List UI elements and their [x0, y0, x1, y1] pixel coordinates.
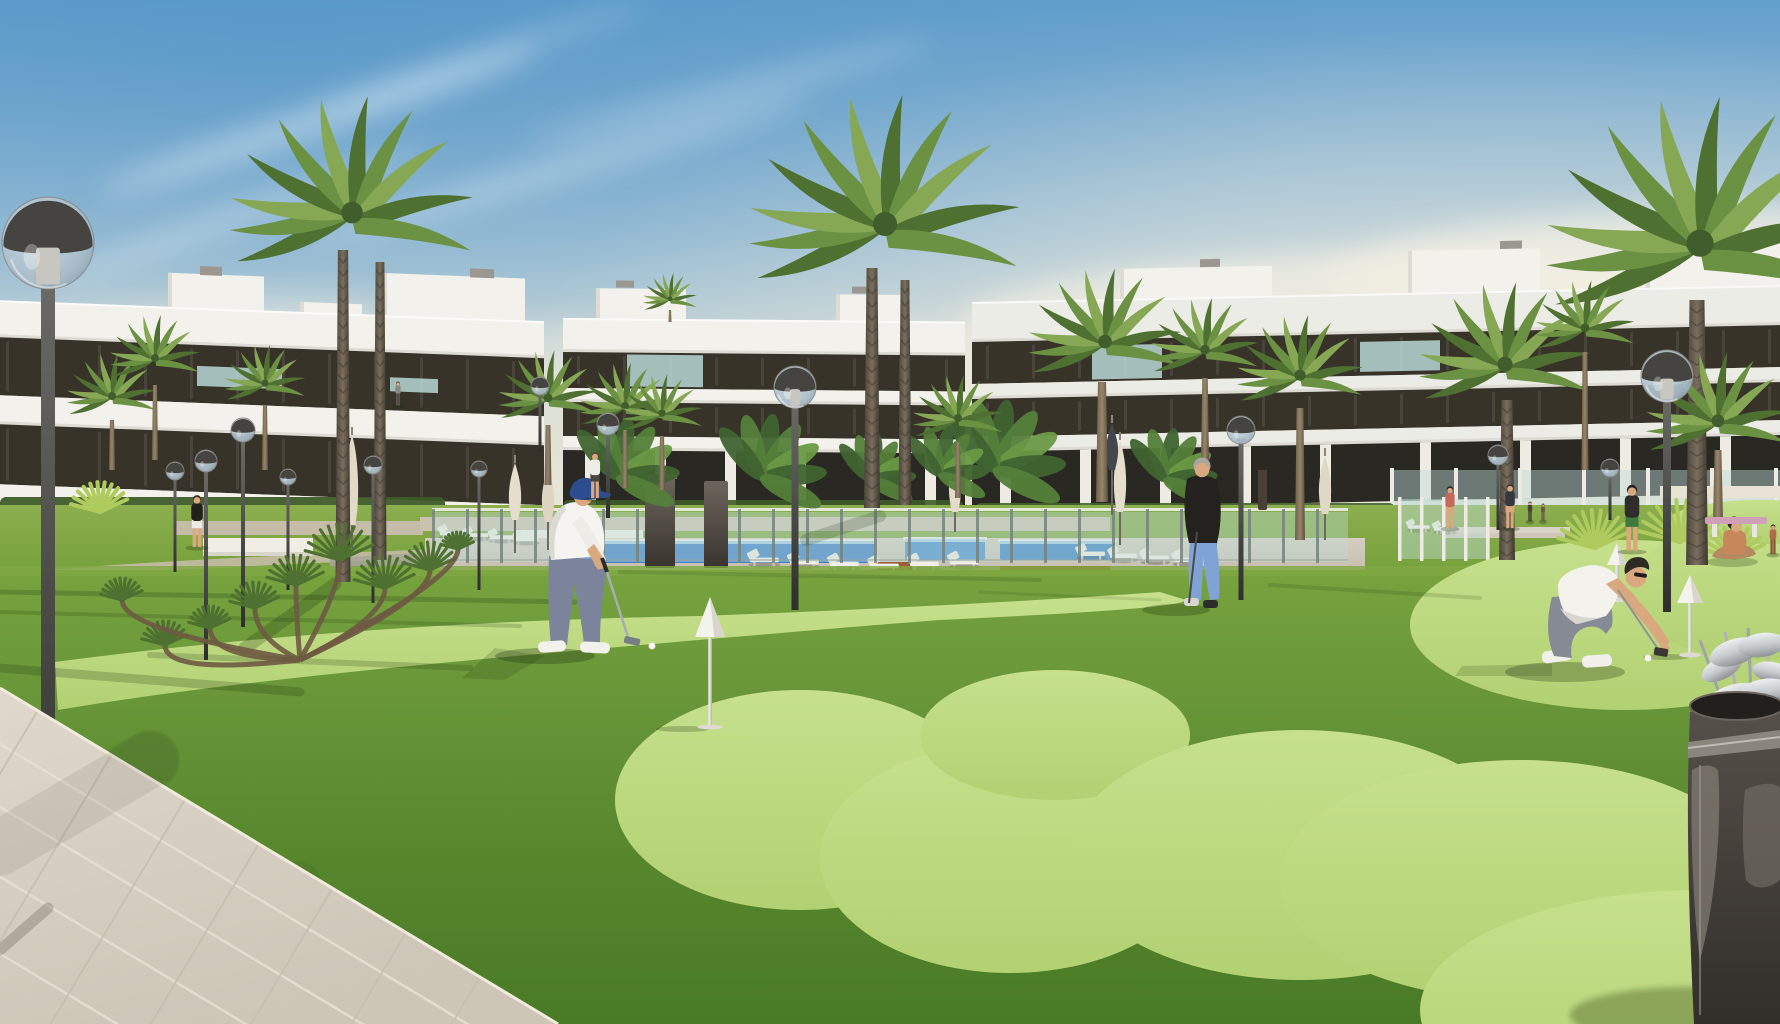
figure-head	[1507, 486, 1513, 492]
figure-head	[194, 497, 201, 504]
penthouse-volume	[383, 273, 525, 322]
lamp-globe-cap-curve	[364, 464, 381, 467]
window-mullion	[715, 357, 718, 385]
window-mullion	[807, 408, 810, 434]
golf-ball	[1645, 655, 1652, 662]
window-mullion	[328, 441, 331, 493]
fence-post	[500, 509, 503, 563]
figure-head	[1771, 526, 1775, 530]
lamp-globe-cap-curve	[166, 470, 183, 473]
figure-head	[592, 454, 598, 460]
figure-leg	[1506, 511, 1509, 529]
fence-post	[772, 509, 775, 563]
figure-torso	[1770, 529, 1777, 539]
window-mullion	[853, 359, 856, 387]
window-mullion	[577, 356, 580, 384]
lamp-glint	[200, 461, 204, 467]
fence-post	[1078, 509, 1081, 563]
window-mullion	[1538, 391, 1541, 421]
window-mullion	[98, 432, 101, 484]
window-mullion	[1308, 396, 1311, 426]
figure-leg	[1543, 512, 1544, 521]
figure-leg	[198, 526, 202, 547]
lamp-globe-cap-curve	[597, 423, 618, 427]
rooftop-ac-unit	[616, 280, 634, 287]
window-mullion	[1492, 392, 1495, 422]
palm-crown-core	[954, 414, 962, 422]
figure-head	[1529, 502, 1532, 505]
figure-torso	[1528, 505, 1532, 512]
palm-crown-core	[1294, 370, 1305, 381]
lamp-pole	[1609, 474, 1612, 520]
palm-trunk	[955, 442, 961, 498]
lamp-glint	[1234, 430, 1239, 438]
terrace-post	[1582, 468, 1586, 510]
penthouse-shade	[596, 288, 600, 318]
lamp-globe-cap-curve	[1227, 428, 1254, 433]
rooftop-ac-unit	[852, 287, 868, 294]
resort-render	[0, 0, 1780, 1024]
window-mullion	[6, 429, 9, 481]
figure-shadow	[585, 497, 605, 502]
window-mullion	[1262, 397, 1265, 427]
fence-post	[1146, 509, 1149, 563]
rooftop-ac-unit	[1200, 259, 1220, 267]
figure-leg	[1530, 511, 1532, 521]
fence-post	[534, 509, 537, 563]
golf-bag-rim	[1690, 692, 1780, 720]
window-mullion	[1630, 332, 1633, 366]
palm-trunk	[152, 385, 158, 460]
figure-torso	[191, 503, 202, 521]
lamp-pole	[606, 431, 610, 518]
window-mullion	[1446, 393, 1449, 423]
figure-leg	[1626, 524, 1631, 550]
fence-post-white	[1398, 497, 1402, 561]
figure-torso	[590, 459, 600, 475]
figure-leg	[1633, 524, 1638, 550]
figure-shadow	[1539, 520, 1547, 525]
lamp-glint	[368, 465, 371, 470]
penthouse-shade	[168, 273, 172, 309]
figure-leg	[1770, 539, 1772, 555]
crouched-man-shoe	[1582, 654, 1613, 668]
window-mullion	[1078, 401, 1081, 431]
figure-leg	[193, 526, 197, 547]
figure-leg	[396, 393, 398, 405]
golf-bag-panel	[1743, 784, 1780, 888]
figure-torso	[1625, 495, 1640, 517]
lamp-globe-cap-curve	[280, 476, 296, 479]
figure-leg	[1511, 511, 1514, 529]
figure-head	[1542, 504, 1544, 506]
lamp-glint	[1493, 455, 1497, 461]
fence-post	[840, 509, 843, 563]
palm-trunk	[1499, 400, 1515, 560]
lamp-pole	[1497, 462, 1500, 531]
palm-crown-core	[544, 393, 553, 402]
palm-crown-core	[1497, 357, 1512, 372]
palm-trunk	[1295, 408, 1305, 540]
palm-crown-core	[261, 380, 268, 387]
window-mullion	[1630, 389, 1633, 419]
figure-head	[1447, 488, 1452, 493]
figure-head	[396, 382, 399, 385]
palm-trunk	[545, 425, 552, 485]
penthouse-volume	[168, 273, 264, 313]
penthouse-volume	[1408, 248, 1540, 295]
figure-shadow	[1500, 527, 1519, 532]
fence-post-white	[1420, 497, 1424, 561]
lamp-glint	[170, 471, 173, 476]
golf-ball	[649, 643, 656, 650]
figure-shadow	[1441, 527, 1459, 532]
figure-leg	[1451, 511, 1454, 528]
fence-post	[1112, 509, 1115, 563]
window-mullion	[466, 359, 469, 409]
lamp-globe-cap-curve	[231, 428, 254, 432]
lamp-glint	[535, 386, 538, 391]
fence-post-white	[1486, 497, 1490, 561]
lamp-globe-cap-curve	[195, 460, 216, 464]
lamp-glint	[602, 424, 606, 430]
golfer-shoe	[538, 640, 567, 653]
ground-column	[1080, 450, 1091, 508]
palm-crown-core	[658, 410, 665, 417]
figure-torso	[395, 385, 400, 393]
figure-shadow	[186, 546, 209, 551]
standing-man-shoe	[1184, 598, 1199, 606]
window-mullion	[144, 434, 147, 486]
palm-crown-core	[1098, 335, 1112, 349]
figure-torso	[1505, 491, 1515, 506]
figure-leg	[1773, 539, 1775, 555]
render-canvas	[0, 0, 1780, 1024]
pin-base	[697, 725, 722, 730]
fence-post	[1316, 509, 1319, 563]
window-mullion	[715, 407, 718, 433]
window-mullion	[236, 437, 239, 489]
fence-post-white	[1464, 497, 1468, 561]
lamp-pole	[1663, 393, 1671, 612]
lamp-globe-cap-curve	[471, 468, 487, 471]
palm-trunk	[374, 262, 387, 560]
palm-trunk	[1582, 352, 1589, 470]
lamp-glint	[1653, 377, 1662, 392]
penthouse-shade	[836, 294, 840, 320]
palm-trunk	[1201, 378, 1209, 460]
window-mullion	[6, 342, 9, 392]
lamp-glint	[475, 469, 478, 473]
terrace-post	[1518, 468, 1522, 510]
figure-head	[1628, 487, 1637, 496]
palm-trunk	[262, 405, 268, 470]
figure-leg	[1446, 511, 1449, 528]
lamp-glint	[284, 477, 287, 481]
window-mullion	[190, 436, 193, 488]
bollard-cap	[1256, 465, 1269, 470]
palm-crown-core	[108, 392, 116, 400]
window-mullion	[853, 409, 856, 435]
lamp-globe-cap-curve	[1601, 467, 1618, 470]
figure-leg	[1541, 512, 1542, 521]
standing-man-shadow	[1142, 604, 1210, 616]
figure-leg	[596, 480, 599, 498]
palm-crown-core	[151, 354, 159, 362]
lamp-pole	[478, 474, 481, 590]
palm-trunk	[1096, 382, 1108, 502]
lamp-pole	[539, 392, 542, 452]
standing-man-head	[1195, 463, 1209, 477]
figure-torso	[1445, 493, 1454, 507]
penthouse-shade	[1120, 269, 1124, 301]
lamp-pole	[174, 477, 177, 572]
window-mullion	[1354, 395, 1357, 425]
fence-post	[1044, 509, 1047, 563]
fence-post	[738, 509, 741, 563]
lamp-globe-cap-curve	[1488, 454, 1507, 458]
figure-shadow	[1766, 553, 1779, 558]
window-mullion	[282, 352, 285, 402]
window-mullion	[1124, 400, 1127, 430]
palm-crown-core	[1200, 345, 1210, 355]
lamp-glint	[24, 244, 41, 270]
rooftop-ac-unit	[1500, 240, 1522, 248]
figure-leg	[1528, 511, 1530, 521]
window-mullion	[1170, 399, 1173, 429]
figure-shadow	[393, 404, 404, 409]
window-mullion	[328, 354, 331, 404]
pink-bench-leg	[1752, 524, 1757, 537]
rooftop-ac-unit	[470, 268, 494, 278]
fence-post	[636, 509, 639, 563]
figure-leg	[591, 480, 594, 498]
fence-post	[1282, 509, 1285, 563]
palm-trunk	[109, 420, 115, 470]
standing-man-shoe	[1203, 600, 1218, 608]
palm-crown-core	[341, 202, 363, 224]
pin-base	[1679, 653, 1701, 658]
fence-post	[976, 509, 979, 563]
fence-post	[908, 509, 911, 563]
penthouse-shade	[1408, 251, 1412, 295]
palm-crown-core	[1581, 323, 1590, 332]
standing-man-sweater	[1185, 475, 1221, 543]
window-mullion	[1216, 398, 1219, 428]
lamp-glint	[237, 430, 241, 437]
window-mullion	[1032, 345, 1035, 379]
golfer-shoe	[580, 641, 611, 654]
window-mullion	[190, 349, 193, 399]
sitting-woman-top	[1723, 529, 1746, 554]
palm-trunk	[659, 436, 665, 490]
window-mullion	[577, 406, 580, 432]
lamp-glint	[784, 387, 792, 399]
window-mullion	[986, 346, 989, 380]
pink-bench	[1705, 517, 1767, 524]
fence-post	[1010, 509, 1013, 563]
palm-trunk	[1713, 450, 1723, 520]
penthouse-volume	[1120, 266, 1272, 301]
pink-bench-leg	[1712, 524, 1717, 537]
palm-crown-core	[1712, 414, 1725, 427]
figure-torso	[1541, 507, 1545, 513]
palm-trunk	[669, 310, 672, 322]
lamp-pole	[792, 401, 799, 610]
window-mullion	[761, 358, 764, 386]
palm-crown-core	[873, 212, 897, 236]
lamp-glint	[1605, 468, 1608, 473]
window-mullion	[1400, 394, 1403, 424]
lamp-pole	[204, 468, 208, 660]
palm-crown-core	[1686, 230, 1713, 257]
figure-shadow	[1617, 550, 1646, 555]
window-mullion	[420, 444, 423, 496]
lamp-globe-cap-curve	[531, 385, 548, 388]
fence-post	[1180, 509, 1183, 563]
lamp-pole	[1239, 439, 1244, 600]
white-bench-wall-shade	[203, 552, 313, 556]
figure-shadow	[1526, 520, 1535, 525]
window-mullion	[466, 446, 469, 498]
terrace-post	[1646, 468, 1650, 510]
palm-crown-core	[668, 296, 673, 301]
rooftop-ac-unit	[200, 266, 222, 276]
figure-leg	[398, 393, 400, 405]
lounger-leg	[1177, 562, 1179, 567]
window-mullion	[1768, 329, 1771, 363]
fence-post	[942, 509, 945, 563]
shower-pillar	[704, 481, 728, 568]
bollard-light	[1258, 468, 1267, 510]
palm-trunk	[622, 430, 628, 488]
fence-post	[1248, 509, 1251, 563]
